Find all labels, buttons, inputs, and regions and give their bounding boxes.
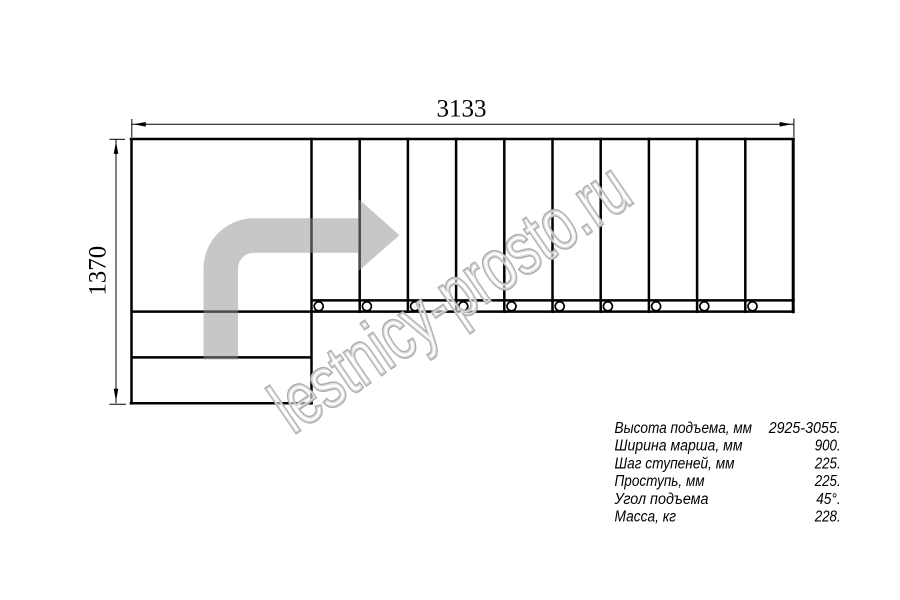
svg-text:Шаг ступеней, мм: Шаг ступеней, мм — [615, 455, 735, 472]
svg-text:1370: 1370 — [85, 246, 112, 296]
svg-text:Угол подъема: Угол подъема — [614, 491, 709, 508]
svg-text:900.: 900. — [815, 438, 841, 455]
svg-text:3133: 3133 — [437, 95, 487, 122]
svg-text:Высота подъема, мм: Высота подъема, мм — [615, 420, 753, 437]
svg-text:225.: 225. — [814, 473, 841, 490]
svg-text:45°.: 45°. — [816, 491, 841, 508]
svg-text:2925-3055.: 2925-3055. — [768, 420, 841, 437]
svg-text:225.: 225. — [814, 455, 841, 472]
svg-text:Ширина марша, мм: Ширина марша, мм — [615, 438, 743, 455]
svg-text:228.: 228. — [814, 509, 841, 526]
svg-text:Проступь, мм: Проступь, мм — [615, 473, 705, 490]
svg-text:Масса, кг: Масса, кг — [615, 509, 677, 526]
